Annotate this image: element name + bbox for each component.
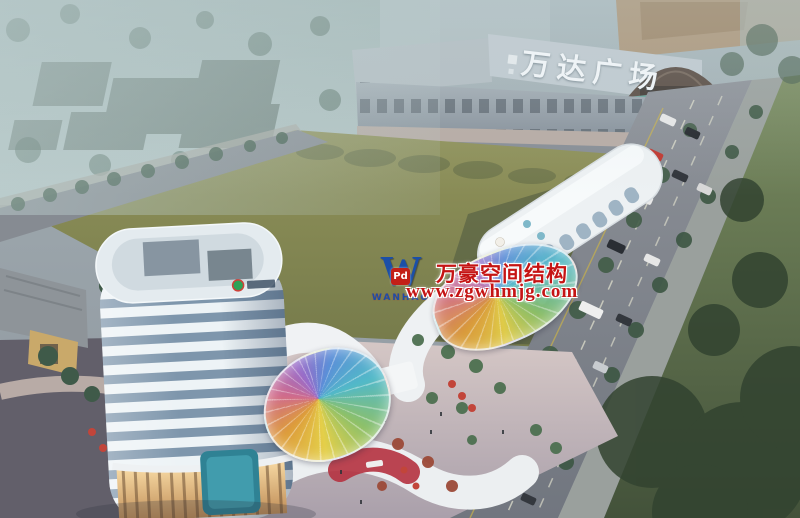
architectural-rendering: 万达广场 W Pd WANHAO 万豪空间结构 www.zgwhmjg.com [0, 0, 800, 518]
roof-equipment-2 [207, 249, 253, 281]
tower [94, 221, 295, 518]
scene-canvas [0, 0, 800, 518]
wanda-logo-mark [507, 54, 517, 64]
roof-equipment-1 [143, 239, 201, 276]
